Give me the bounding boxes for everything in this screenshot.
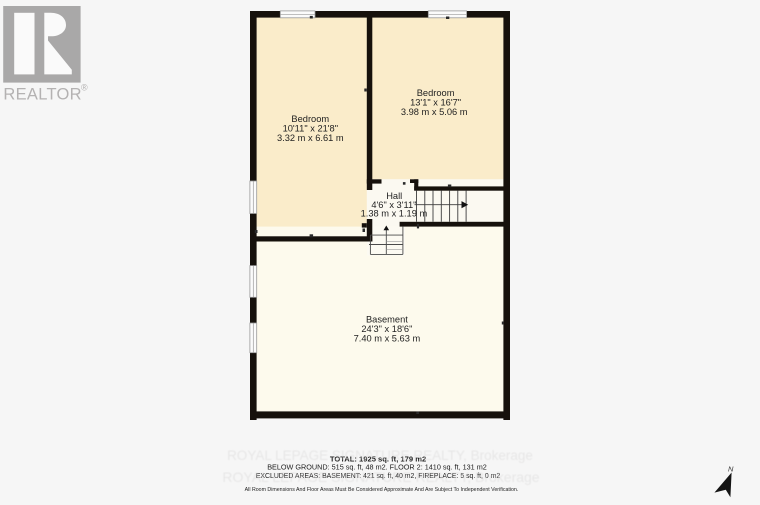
- svg-text:1.38 m x 1.19 m: 1.38 m x 1.19 m: [361, 209, 428, 219]
- svg-text:REALTOR: REALTOR: [3, 86, 82, 104]
- svg-text:®: ®: [81, 83, 88, 93]
- svg-text:N: N: [728, 465, 734, 474]
- svg-text:3.32 m x 6.61 m: 3.32 m x 6.61 m: [277, 133, 344, 143]
- svg-text:10'11" x 21'8": 10'11" x 21'8": [283, 124, 338, 134]
- svg-text:All Room Dimensions And Floor: All Room Dimensions And Floor Areas Must…: [245, 487, 519, 493]
- svg-text:3.98 m x 5.06 m: 3.98 m x 5.06 m: [401, 107, 468, 117]
- svg-text:Bedroom: Bedroom: [291, 114, 329, 124]
- svg-text:7.40 m x 5.63 m: 7.40 m x 5.63 m: [354, 333, 421, 343]
- svg-text:Basement: Basement: [366, 315, 408, 325]
- svg-text:ROYAL LEPAGE SIGNATURE REALTY,: ROYAL LEPAGE SIGNATURE REALTY, Brokerage: [222, 469, 539, 485]
- svg-text:ROYAL LEPAGE SIGNATURE REALTY,: ROYAL LEPAGE SIGNATURE REALTY, Brokerage: [227, 448, 533, 463]
- svg-text:Bedroom: Bedroom: [417, 88, 455, 98]
